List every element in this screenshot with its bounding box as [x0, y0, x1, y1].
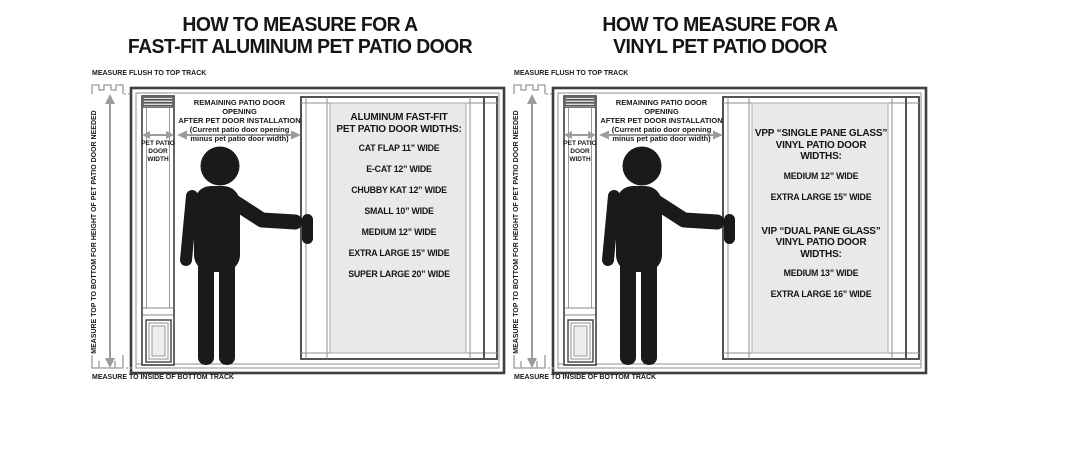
top-track-icon — [92, 85, 123, 94]
bottom-track-label: MEASURE TO INSIDE OF BOTTOM TRACK — [92, 374, 234, 381]
door-widths-section: VPP “SINGLE PANE GLASS”VINYL PATIO DOOR … — [754, 128, 888, 202]
page: HOW TO MEASURE FOR A FAST-FIT ALUMINUM P… — [0, 0, 1080, 453]
pet-door-width-label: PET PATIO DOOR WIDTH — [141, 140, 175, 164]
door-width-item: SMALL 10” WIDE — [332, 206, 466, 216]
door-width-item: CAT FLAP 11” WIDE — [332, 143, 466, 153]
note-line: REMAINING PATIO DOOR OPENING — [177, 98, 302, 116]
title-line2: VINYL PET PATIO DOOR — [514, 36, 925, 58]
person-silhouette — [186, 147, 295, 366]
diagram-title-aluminum: HOW TO MEASURE FOR A FAST-FIT ALUMINUM P… — [94, 14, 505, 58]
insert-spring-header — [144, 98, 173, 108]
height-arrow — [527, 94, 537, 368]
door-widths-panel: ALUMINUM FAST-FITPET PATIO DOOR WIDTHS:C… — [332, 112, 466, 290]
insert-spring-header — [566, 98, 595, 108]
door-width-item: MEDIUM 12” WIDE — [332, 227, 466, 237]
diagram-aluminum: MEASURE FLUSH TO TOP TRACK — [88, 70, 512, 388]
title-line1: HOW TO MEASURE FOR A — [94, 14, 505, 36]
diagram-title-vinyl: HOW TO MEASURE FOR A VINYL PET PATIO DOO… — [514, 14, 925, 58]
remaining-opening-note: REMAINING PATIO DOOR OPENING AFTER PET D… — [599, 98, 724, 143]
track-icons — [92, 85, 134, 368]
door-handle — [724, 214, 735, 244]
pet-door-width-label: PET PATIO DOOR WIDTH — [563, 140, 597, 164]
door-widths-heading: VPP “SINGLE PANE GLASS”VINYL PATIO DOOR … — [754, 128, 888, 163]
door-widths-section: VIP “DUAL PANE GLASS”VINYL PATIO DOOR WI… — [754, 226, 888, 300]
door-width-item: MEDIUM 13” WIDE — [754, 268, 888, 278]
height-arrow — [105, 94, 115, 368]
door-widths-panel: VPP “SINGLE PANE GLASS”VINYL PATIO DOOR … — [754, 128, 888, 310]
door-widths-heading: ALUMINUM FAST-FITPET PATIO DOOR WIDTHS: — [332, 112, 466, 135]
height-measure-label: MEASURE TOP TO BOTTOM FOR HEIGHT OF PET … — [91, 96, 98, 368]
diagram-vinyl: MEASURE FLUSH TO TOP TRACK — [510, 70, 934, 388]
door-width-item: SUPER LARGE 20” WIDE — [332, 269, 466, 279]
door-width-item: EXTRA LARGE 15” WIDE — [754, 192, 888, 202]
note-line: AFTER PET DOOR INSTALLATION — [599, 116, 724, 125]
pet-flap — [146, 320, 171, 362]
top-track-label: MEASURE FLUSH TO TOP TRACK — [514, 70, 628, 77]
note-line: minus pet patio door width) — [177, 134, 302, 143]
bottom-track-label: MEASURE TO INSIDE OF BOTTOM TRACK — [514, 374, 656, 381]
note-line: REMAINING PATIO DOOR OPENING — [599, 98, 724, 116]
note-line: (Current patio door opening — [177, 125, 302, 134]
note-line: (Current patio door opening — [599, 125, 724, 134]
top-track-label: MEASURE FLUSH TO TOP TRACK — [92, 70, 206, 77]
remaining-opening-note: REMAINING PATIO DOOR OPENING AFTER PET D… — [177, 98, 302, 143]
note-line: minus pet patio door width) — [599, 134, 724, 143]
door-widths-heading: VIP “DUAL PANE GLASS”VINYL PATIO DOOR WI… — [754, 226, 888, 261]
pet-flap — [568, 320, 593, 362]
title-line1: HOW TO MEASURE FOR A — [514, 14, 925, 36]
door-width-item: E-CAT 12” WIDE — [332, 164, 466, 174]
top-track-icon — [514, 85, 545, 94]
door-width-item: EXTRA LARGE 15” WIDE — [332, 248, 466, 258]
door-width-item: MEDIUM 12” WIDE — [754, 171, 888, 181]
door-widths-section: ALUMINUM FAST-FITPET PATIO DOOR WIDTHS:C… — [332, 112, 466, 279]
title-line2: FAST-FIT ALUMINUM PET PATIO DOOR — [94, 36, 505, 58]
door-width-item: EXTRA LARGE 16” WIDE — [754, 289, 888, 299]
person-silhouette — [608, 147, 717, 366]
door-handle — [302, 214, 313, 244]
door-width-item: CHUBBY KAT 12” WIDE — [332, 185, 466, 195]
height-measure-label: MEASURE TOP TO BOTTOM FOR HEIGHT OF PET … — [513, 96, 520, 368]
note-line: AFTER PET DOOR INSTALLATION — [177, 116, 302, 125]
track-icons — [514, 85, 556, 368]
